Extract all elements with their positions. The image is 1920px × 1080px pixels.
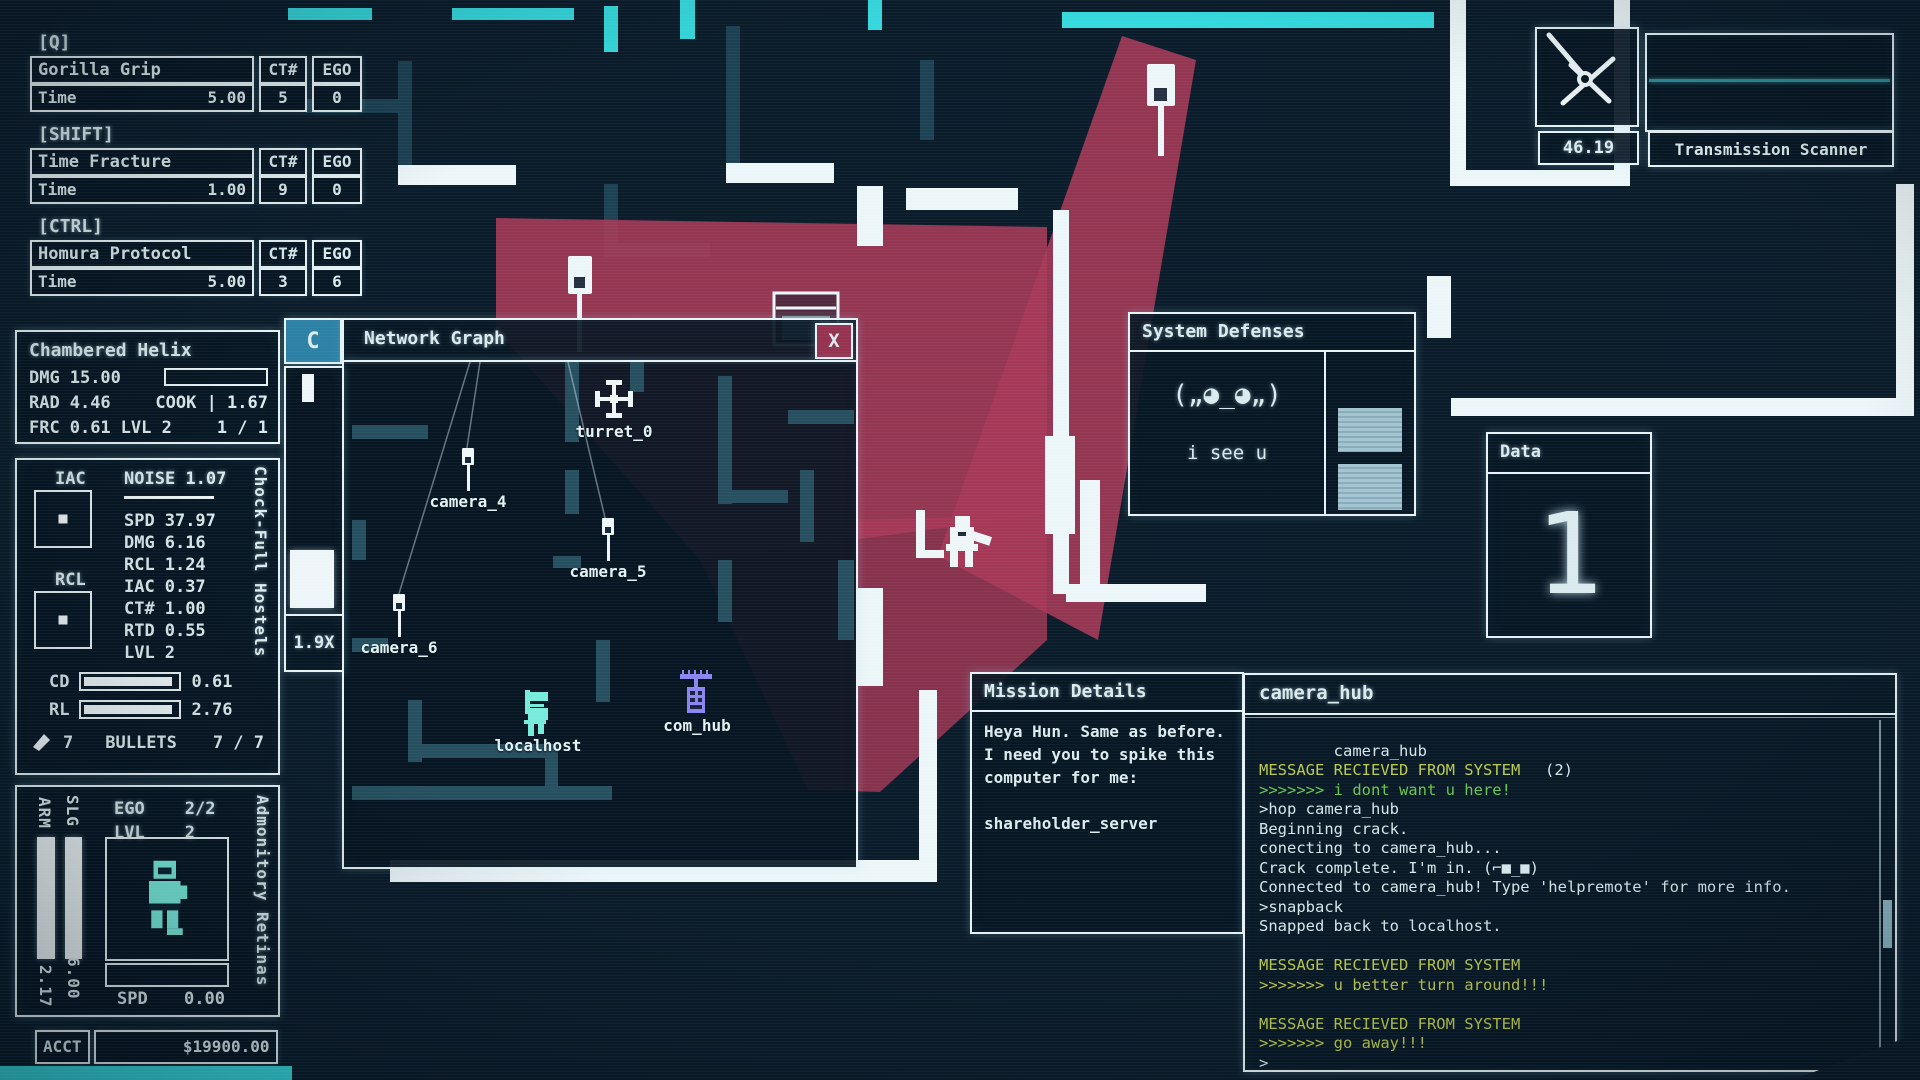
stat-label: Time [38, 270, 77, 294]
grenade-count: 1 / 1 [217, 418, 268, 438]
weapon-panel: IAC RCL NOISE 1.07 SPD37.97 DMG6.16 RCL1… [15, 458, 280, 775]
terminal-window: camera_hub camera_hub (2) MESSAGE RECIEV… [1243, 673, 1897, 1072]
terminal-line: MESSAGE RECIEVED FROM SYSTEM [1259, 956, 1875, 976]
turret-icon [591, 376, 637, 422]
terminal-line: MESSAGE RECIEVED FROM SYSTEM [1259, 1015, 1875, 1035]
node-label: turret_0 [575, 422, 652, 441]
graph-close-button[interactable]: X [815, 323, 853, 359]
defenses-body: („◕_◕„) i see u [1130, 350, 1414, 514]
account-label: ACCT [35, 1030, 90, 1064]
terminal-line: >>>>>>> go away!!! [1259, 1034, 1875, 1054]
stat-label: CT# [124, 599, 155, 619]
hotkey-label: [SHIFT] [38, 124, 114, 145]
character-preview-box [105, 837, 229, 961]
graph-title: Network Graph [364, 328, 505, 349]
arm-value: 2.17 [36, 965, 55, 1008]
stat-value: 0.55 [165, 621, 206, 641]
ammo-value: 7 / 7 [213, 733, 264, 753]
terminal-host-row: camera_hub (2) [1259, 722, 1875, 742]
game-screen: C Network Graph X [0, 0, 1920, 1080]
stat-label: RCL [124, 555, 155, 575]
terminal-line [1259, 995, 1875, 1015]
character-sprite [140, 860, 194, 938]
rad-value: 4.46 [70, 393, 111, 413]
scanner-display [1645, 33, 1894, 132]
ego-header: EGO [312, 56, 362, 84]
stat-value: 37.97 [165, 511, 216, 531]
rcl-label: RCL [55, 570, 86, 590]
node-camera_5[interactable]: camera_5 [548, 518, 668, 581]
terminal-prompt[interactable]: > [1259, 1054, 1875, 1074]
weapon-name-vertical: Chock-Full Hostels [251, 466, 270, 657]
system-defenses-title: System Defenses [1142, 321, 1305, 342]
defense-face: („◕_◕„) [1130, 380, 1324, 410]
terminal-tab-count: (2) [1545, 761, 1573, 781]
scanner-trace [1649, 79, 1890, 82]
terminal-line [1259, 937, 1875, 957]
node-camera_6[interactable]: camera_6 [339, 594, 459, 657]
spd-value: 0.00 [184, 989, 225, 1009]
slg-bar [65, 837, 82, 959]
defense-block [1338, 464, 1402, 510]
dmg-label: DMG [29, 368, 60, 388]
camera-node-icon [392, 594, 406, 638]
terminal-scroll-handle[interactable] [1883, 900, 1892, 948]
close-icon: X [828, 330, 839, 352]
graph-zoom-slider [284, 366, 344, 616]
mission-line [984, 791, 1230, 814]
rcl-slot[interactable] [34, 591, 92, 649]
mission-target: shareholder_server [984, 814, 1230, 837]
account-balance: $19900.00 [94, 1030, 278, 1064]
scanner-title: Transmission Scanner [1675, 140, 1868, 159]
stat-label: LVL [124, 643, 155, 663]
dmg-value: 15.00 [70, 368, 121, 388]
cd-label: CD [49, 672, 69, 692]
skill-name: Gorilla Grip [30, 56, 254, 84]
node-camera_4[interactable]: camera_4 [408, 448, 528, 511]
node-label: com_hub [663, 716, 730, 735]
frc-value: 0.61 [70, 418, 111, 438]
ego-header: EGO [312, 240, 362, 268]
stat-label: IAC [124, 577, 155, 597]
slider-tick [302, 374, 314, 402]
ego-header: EGO [312, 148, 362, 176]
mission-line: I need you to spike this [984, 745, 1230, 768]
stat-label: Time [38, 178, 77, 202]
node-label: camera_5 [569, 562, 646, 581]
graph-body: turret_0 camera_4 camera_5 [342, 360, 858, 869]
clock-time: 46.19 [1563, 138, 1614, 158]
hotbar-slot-ctrl[interactable]: [CTRL] Homura Protocol CT# EGO Time5.00 … [30, 216, 103, 237]
graph-collapse-label: C [306, 329, 319, 354]
terminal-line: Crack complete. I'm in. (⌐■_■) [1259, 859, 1875, 879]
speed-bar [105, 963, 229, 987]
localhost-icon [521, 688, 555, 736]
armor-name-vertical: Admonitory Retinas [253, 795, 272, 986]
defense-block [1338, 408, 1402, 452]
cook-bar [164, 368, 268, 386]
ct-value: 5 [259, 84, 307, 112]
ct-header: CT# [259, 148, 307, 176]
stat-value: 1.24 [165, 555, 206, 575]
clock-time-box: 46.19 [1538, 131, 1639, 165]
stat-label: SPD [124, 511, 155, 531]
node-localhost[interactable]: localhost [478, 688, 598, 755]
stat-value: 5.00 [207, 86, 246, 110]
ct-value: 9 [259, 176, 307, 204]
ego-label: EGO [114, 799, 145, 819]
camera-node-icon [461, 448, 475, 492]
cd-bar [79, 672, 181, 691]
terminal-line: >hop camera_hub [1259, 800, 1875, 820]
ego-value: 0 [312, 84, 362, 112]
data-title: Data [1500, 442, 1541, 462]
com-hub-icon [680, 670, 714, 716]
lvl-readout: LVL 2 [121, 418, 172, 438]
graph-zoom-value: 1.9X [294, 633, 335, 653]
defense-slots [1324, 352, 1414, 514]
ammo-label: BULLETS [105, 733, 177, 753]
ct-header: CT# [259, 56, 307, 84]
graph-titlebar[interactable]: Network Graph X [342, 318, 858, 364]
node-com_hub[interactable]: com_hub [637, 670, 757, 735]
node-label: camera_6 [360, 638, 437, 657]
hotbar-slot-shift[interactable]: [SHIFT] Time Fracture CT# EGO Time1.00 9… [30, 124, 114, 145]
mission-line: computer for me: [984, 768, 1230, 791]
terminal-line: Connected to camera_hub! Type 'helpremot… [1259, 878, 1875, 898]
skill-name: Time Fracture [30, 148, 254, 176]
noise-readout: NOISE 1.07 [124, 469, 226, 489]
bullet-icon [31, 732, 53, 754]
cd-value: 0.61 [191, 672, 232, 692]
stat-label: DMG [124, 533, 155, 553]
stat-label: Time [38, 86, 77, 110]
hotkey-label: [Q] [38, 32, 71, 53]
terminal-line: Snapped back to localhost. [1259, 917, 1875, 937]
node-turret_0[interactable]: turret_0 [554, 376, 674, 441]
rad-label: RAD [29, 393, 60, 413]
terminal-scroll-track[interactable] [1879, 720, 1881, 1066]
stat-value: 0.37 [165, 577, 206, 597]
spd-label: SPD [117, 989, 148, 1009]
arm-label: ARM [35, 797, 54, 829]
terminal-line: conecting to camera_hub... [1259, 839, 1875, 859]
iac-slot[interactable] [34, 490, 92, 548]
terminal-line: >>>>>>> u better turn around!!! [1259, 976, 1875, 996]
noise-underline [124, 496, 214, 499]
camera-node-icon [601, 518, 615, 562]
stat-value: 2 [165, 643, 175, 663]
skill-name: Homura Protocol [30, 240, 254, 268]
cook-readout: COOK | 1.67 [155, 393, 268, 413]
ego-value: 0 [312, 176, 362, 204]
iac-label: IAC [55, 469, 86, 489]
terminal-title: camera_hub [1259, 682, 1373, 704]
data-count: 1 [1535, 499, 1602, 611]
terminal-line: >snapback [1259, 898, 1875, 918]
account-bar: ACCT $19900.00 [35, 1030, 278, 1064]
arm-bar [37, 837, 55, 959]
scanner-title-box: Transmission Scanner [1648, 131, 1894, 167]
rl-label: RL [49, 700, 69, 720]
graph-collapse-button[interactable]: C [284, 318, 342, 364]
data-panel: Data 1 [1486, 432, 1652, 638]
ego-value: 6 [312, 268, 362, 296]
rl-bar [79, 700, 181, 719]
node-label: localhost [495, 736, 582, 755]
stat-value: 5.00 [207, 270, 246, 294]
mission-title: Mission Details [984, 681, 1147, 702]
node-label: camera_4 [429, 492, 506, 511]
terminal-host: camera_hub [1334, 742, 1427, 760]
grenade-title: Chambered Helix [29, 340, 192, 361]
ego-value: 2/2 [185, 799, 216, 819]
terminal-titlebar[interactable]: camera_hub [1245, 675, 1895, 715]
grenade-panel: Chambered Helix DMG 15.00 RAD 4.46 COOK … [15, 330, 280, 444]
rl-value: 2.76 [191, 700, 232, 720]
terminal-line: Beginning crack. [1259, 820, 1875, 840]
system-defenses-panel: System Defenses („◕_◕„) i see u [1128, 312, 1416, 516]
terminal-line: >>>>>>> i dont want u here! [1259, 781, 1875, 801]
hotkey-label: [CTRL] [38, 216, 103, 237]
hotbar-slot-q[interactable]: [Q] Gorilla Grip CT# EGO Time5.00 5 0 [30, 32, 71, 53]
terminal-body[interactable]: camera_hub (2) MESSAGE RECIEVED FROM SYS… [1245, 717, 1895, 1070]
mission-line: Heya Hun. Same as before. [984, 722, 1230, 745]
stat-value: 6.16 [165, 533, 206, 553]
ct-value: 3 [259, 268, 307, 296]
frc-label: FRC [29, 418, 60, 438]
stat-label: RTD [124, 621, 155, 641]
slg-label: SLG [63, 795, 82, 827]
mission-body: Heya Hun. Same as before. I need you to … [972, 710, 1242, 932]
stat-value: 1.00 [165, 599, 206, 619]
mission-details-panel: Mission Details Heya Hun. Same as before… [970, 672, 1244, 934]
slider-handle[interactable] [290, 550, 334, 608]
ammo-count: 7 [63, 733, 73, 753]
clock-panel [1535, 27, 1639, 127]
armor-panel: EGO2/2 LVL2 ARM SLG 2.17 6.00 [15, 785, 280, 1017]
clock-icon [1537, 29, 1633, 121]
ct-header: CT# [259, 240, 307, 268]
slg-value: 6.00 [64, 957, 83, 1000]
defense-message: i see u [1130, 442, 1324, 464]
stat-value: 1.00 [207, 178, 246, 202]
graph-zoom-label-box: 1.9X [284, 614, 344, 672]
